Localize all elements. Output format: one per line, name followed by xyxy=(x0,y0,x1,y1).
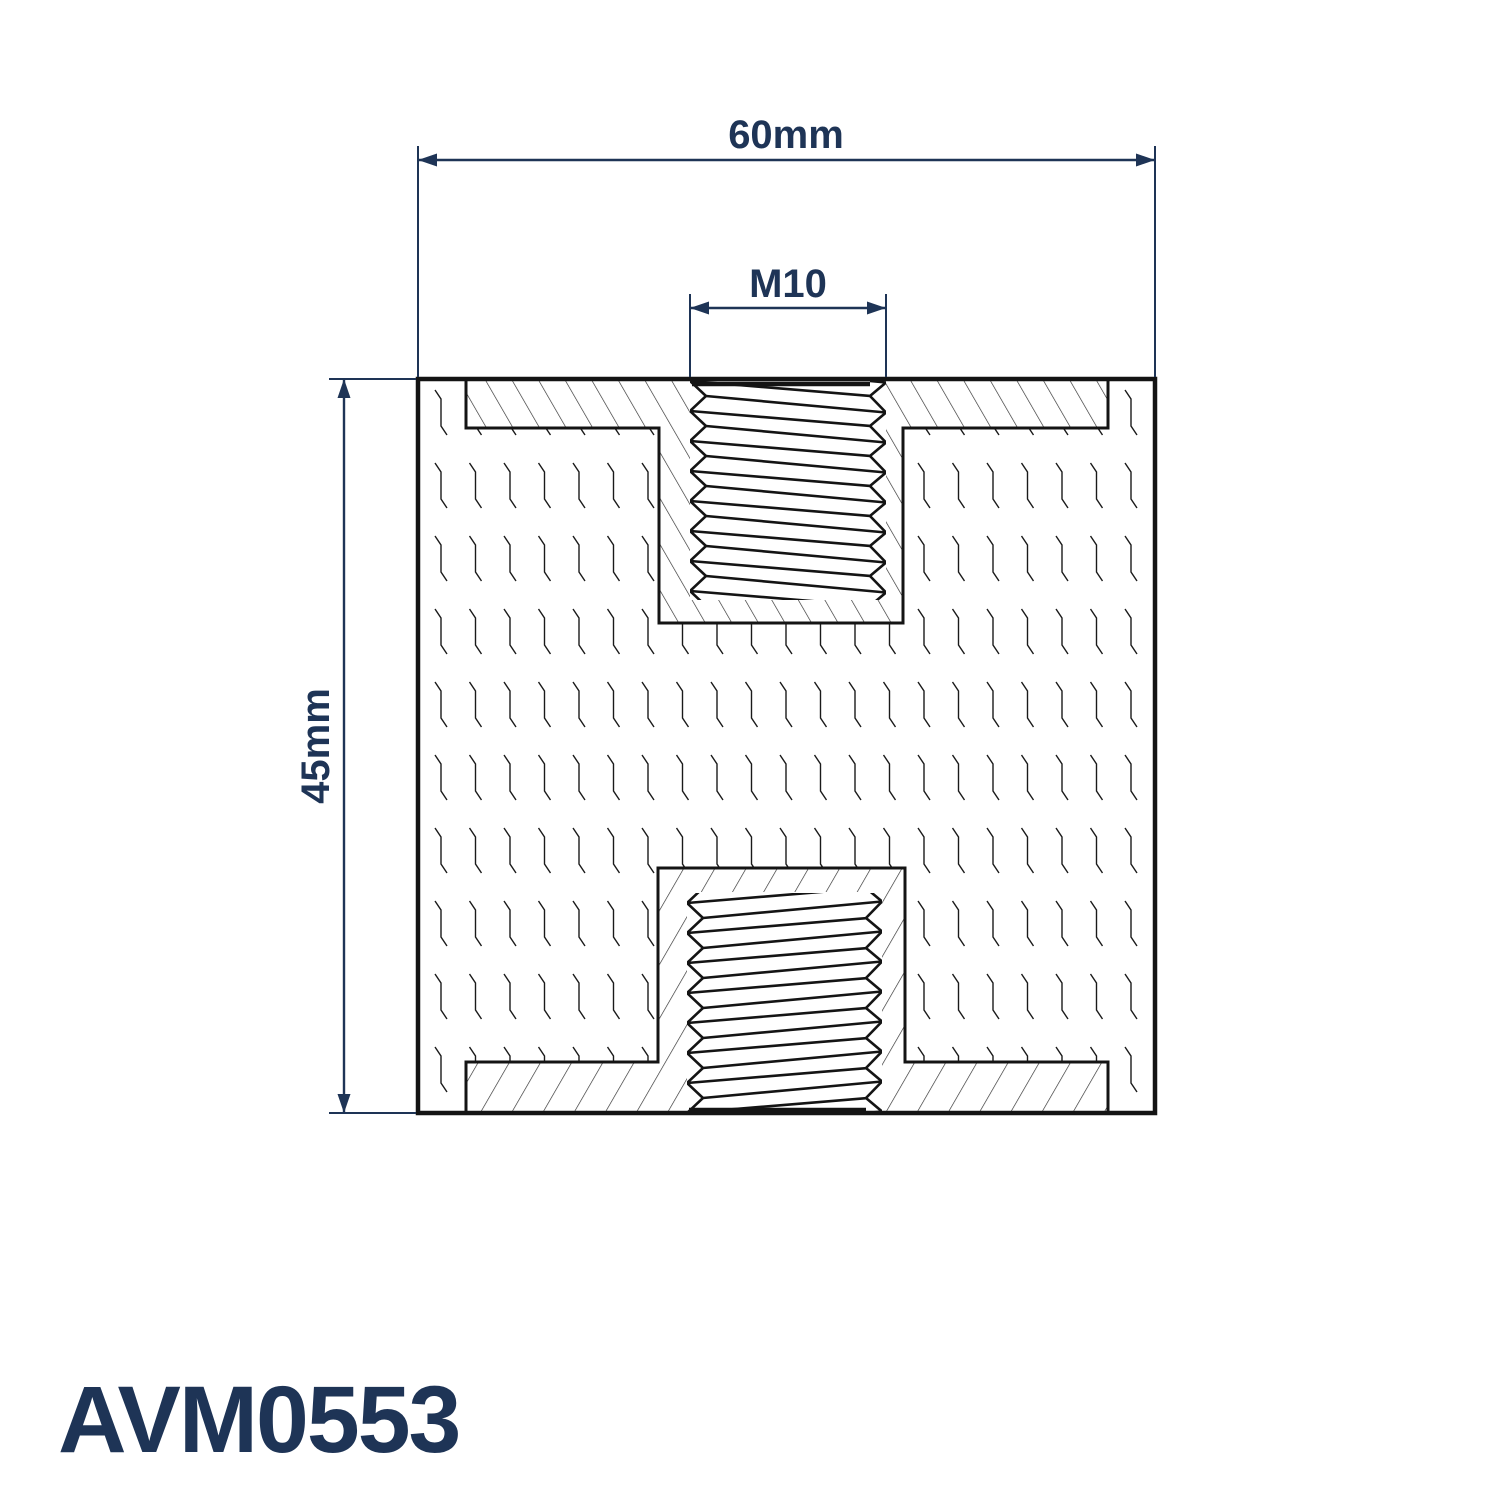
thread-dimension: M10 xyxy=(690,262,886,377)
height-dimension: 45mm xyxy=(294,379,416,1113)
arrow-right-icon xyxy=(867,302,886,315)
width-dimension: 60mm xyxy=(418,113,1155,377)
height-dimension-label: 45mm xyxy=(294,688,338,804)
thread-dimension-label: M10 xyxy=(749,262,827,306)
part-number-label: AVM0553 xyxy=(58,1367,459,1473)
arrow-right-icon xyxy=(1136,154,1155,167)
width-dimension-label: 60mm xyxy=(728,113,844,157)
arrow-left-icon xyxy=(690,302,709,315)
technical-drawing: 60mm M10 45mm AVM0553 xyxy=(0,0,1500,1500)
part-cross-section xyxy=(418,379,1155,1113)
arrow-left-icon xyxy=(418,154,437,167)
arrow-up-icon xyxy=(338,379,351,398)
arrow-down-icon xyxy=(338,1094,351,1113)
